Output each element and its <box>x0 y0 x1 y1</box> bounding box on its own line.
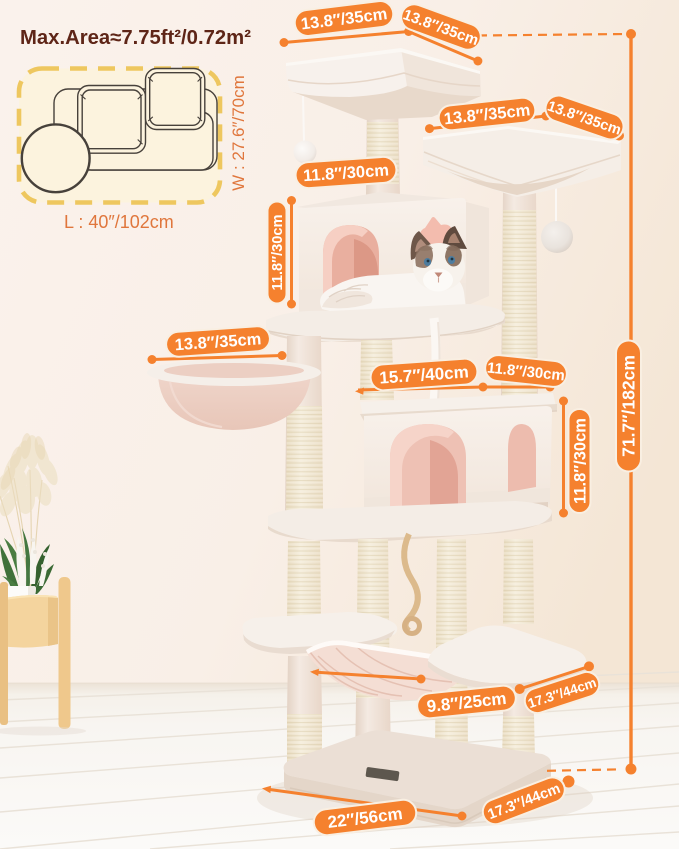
svg-text:71.7″/182cm: 71.7″/182cm <box>619 355 639 457</box>
svg-text:Max.Area≈7.75ft²/0.72m²: Max.Area≈7.75ft²/0.72m² <box>20 27 251 49</box>
svg-text:11.8″/30cm: 11.8″/30cm <box>270 214 286 290</box>
svg-text:L : 40″/102cm: L : 40″/102cm <box>64 212 174 232</box>
svg-text:W : 27.6″/70cm: W : 27.6″/70cm <box>229 75 248 191</box>
svg-text:11.8″/30cm: 11.8″/30cm <box>571 418 589 504</box>
